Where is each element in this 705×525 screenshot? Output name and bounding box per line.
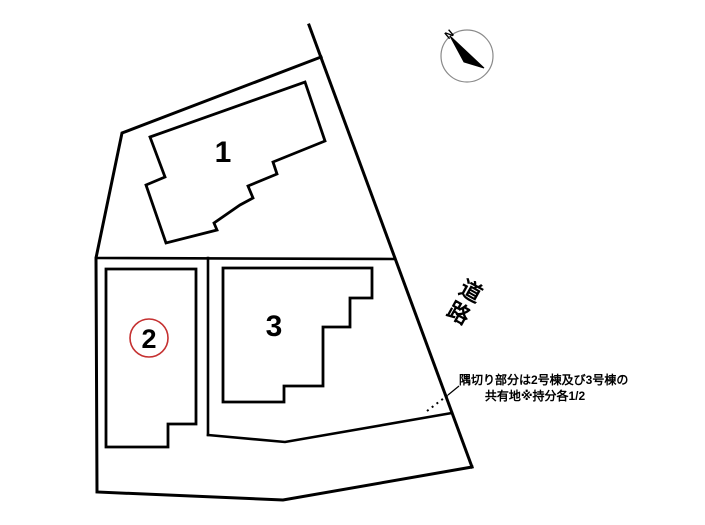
- north-arrow: N: [441, 28, 493, 82]
- site-plan-svg: 1 2 3 道 路 N 隅切り部分は2号棟及び3号棟の 共有地※持分各1/2: [0, 0, 705, 525]
- lot-1-outline: [146, 82, 325, 243]
- lot-divider-horizontal: [96, 258, 395, 259]
- north-arrow-needle: [450, 36, 484, 68]
- lot-3-label: 3: [266, 310, 283, 343]
- road-boundary-line: [309, 25, 472, 467]
- site-plan-diagram: 1 2 3 道 路 N 隅切り部分は2号棟及び3号棟の 共有地※持分各1/2: [0, 0, 705, 525]
- lot-3-outline: [223, 268, 372, 402]
- lot-2-label: 2: [141, 324, 156, 354]
- lot-2-outline: [106, 269, 196, 447]
- lot-1-label: 1: [215, 136, 232, 169]
- corner-cut-tick: [448, 386, 459, 395]
- corner-note-line1: 隅切り部分は2号棟及び3号棟の: [459, 372, 628, 387]
- road-label: 道 路: [443, 275, 487, 330]
- road-edge-line: [208, 413, 452, 442]
- corner-note-line2: 共有地※持分各1/2: [485, 388, 586, 403]
